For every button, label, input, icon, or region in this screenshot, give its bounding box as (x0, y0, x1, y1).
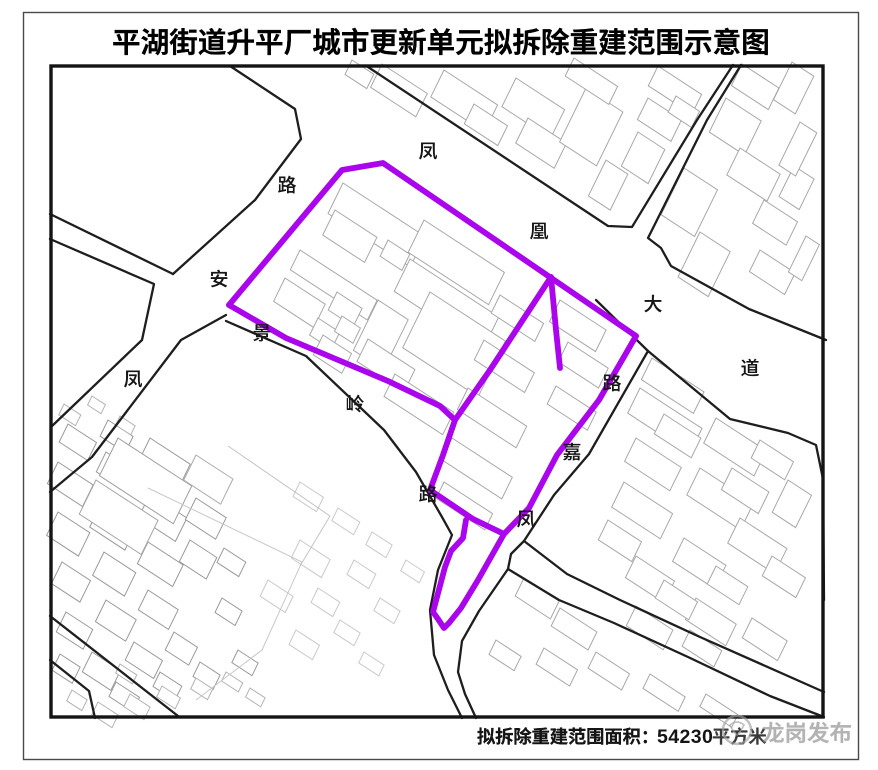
svg-text:54230: 54230 (657, 726, 713, 748)
